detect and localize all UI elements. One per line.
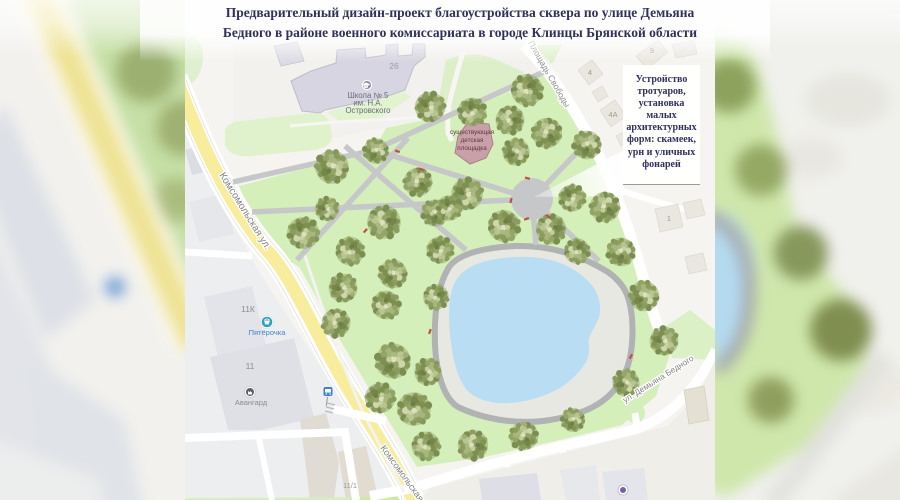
svg-text:11/1: 11/1 bbox=[343, 481, 357, 490]
svg-text:Островского: Островского bbox=[345, 106, 391, 115]
svg-text:существующая: существующая bbox=[450, 129, 494, 136]
svg-text:площадка: площадка bbox=[457, 145, 487, 152]
svg-text:детская: детская bbox=[461, 137, 484, 144]
svg-text:4А: 4А bbox=[608, 110, 617, 119]
svg-text:Пятёрочка: Пятёрочка bbox=[249, 328, 287, 337]
svg-text:11К: 11К bbox=[241, 304, 255, 314]
svg-text:1: 1 bbox=[667, 214, 671, 223]
svg-text:Авангард: Авангард bbox=[235, 398, 268, 407]
svg-text:11: 11 bbox=[246, 361, 255, 371]
